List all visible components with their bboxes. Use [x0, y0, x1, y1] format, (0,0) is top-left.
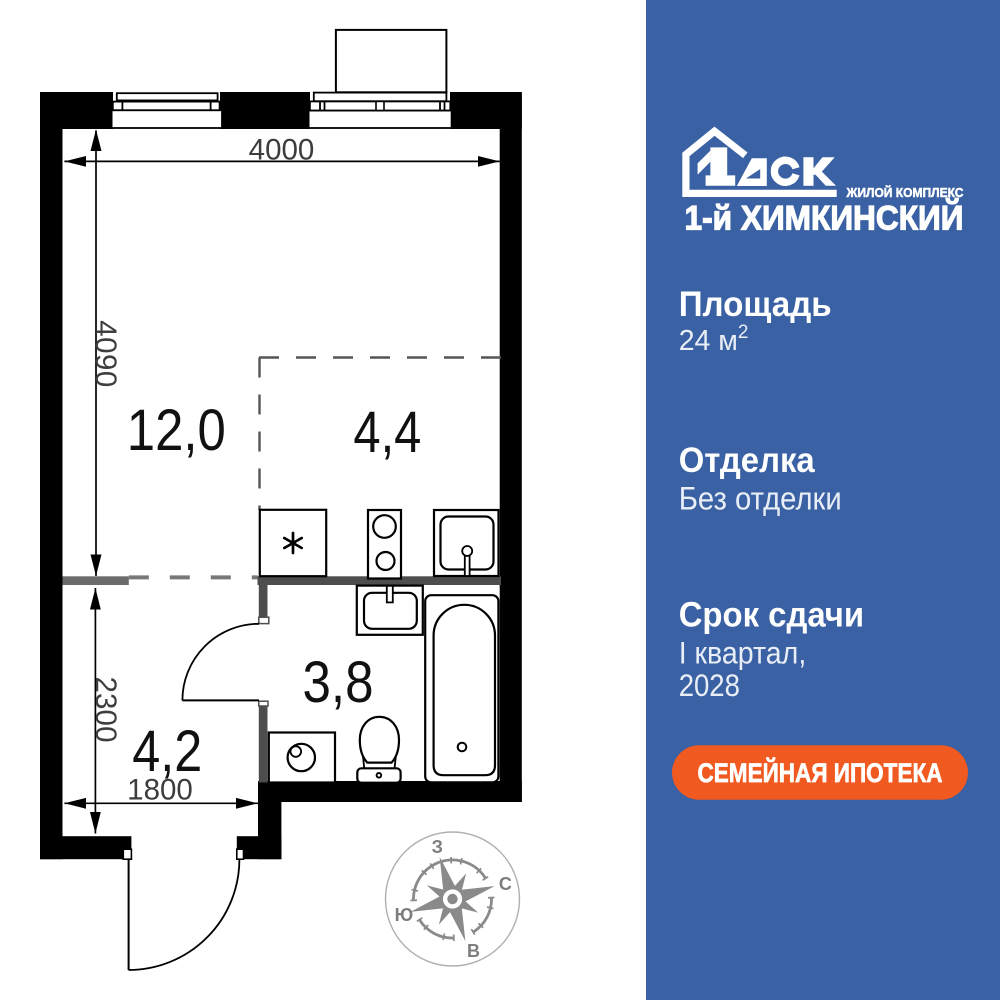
svg-text:12,0: 12,0 — [127, 398, 226, 463]
svg-text:З: З — [432, 837, 443, 857]
svg-text:Без отделки: Без отделки — [679, 481, 842, 517]
svg-text:Отделка: Отделка — [679, 441, 815, 480]
svg-text:Площадь: Площадь — [679, 285, 832, 324]
svg-text:1800: 1800 — [127, 774, 193, 807]
svg-text:3,8: 3,8 — [303, 650, 374, 715]
svg-text:ЖИЛОЙ КОМПЛЕКС: ЖИЛОЙ КОМПЛЕКС — [846, 185, 964, 200]
svg-text:Ю: Ю — [395, 905, 414, 925]
svg-text:1-й ХИМКИНСКИЙ: 1-й ХИМКИНСКИЙ — [685, 198, 964, 238]
svg-text:Срок сдачи: Срок сдачи — [679, 596, 864, 635]
svg-text:В: В — [467, 941, 480, 961]
svg-text:4,4: 4,4 — [353, 400, 421, 465]
svg-text:4000: 4000 — [249, 134, 315, 167]
svg-text:I квартал,: I квартал, — [679, 635, 807, 671]
svg-text:4090: 4090 — [89, 320, 122, 387]
svg-text:2028: 2028 — [679, 667, 740, 703]
svg-text:СЕМЕЙНАЯ ИПОТЕКА: СЕМЕЙНАЯ ИПОТЕКА — [698, 758, 943, 788]
svg-text:С: С — [499, 874, 512, 894]
svg-text:2300: 2300 — [89, 677, 122, 743]
